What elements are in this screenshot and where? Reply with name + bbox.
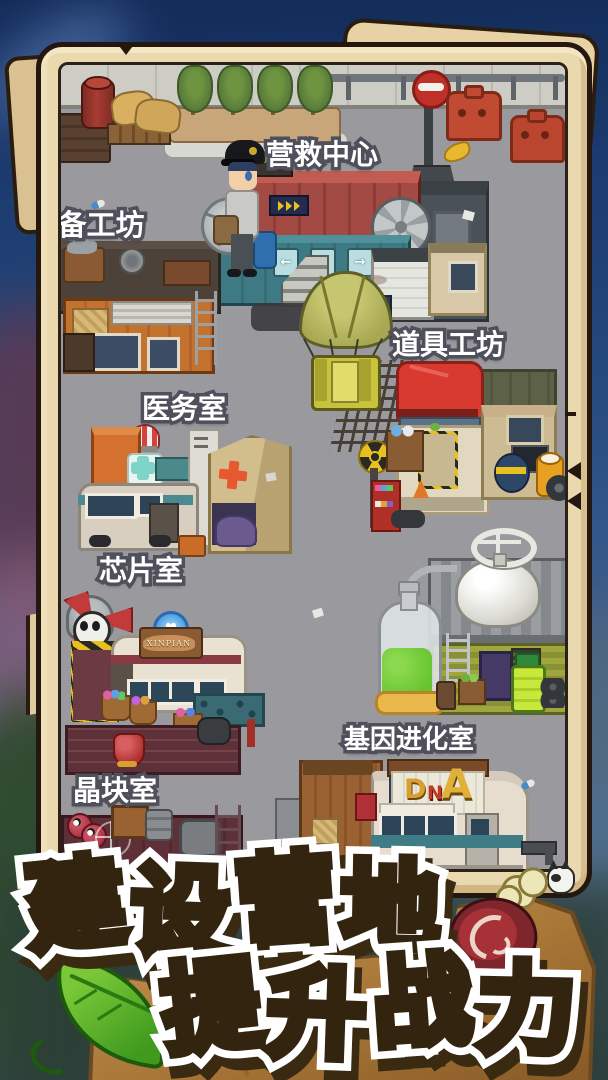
building-propane-lab[interactable]	[371, 525, 568, 715]
plant-foliage	[297, 65, 333, 113]
panel-handle	[194, 437, 208, 440]
panda-eye	[80, 621, 88, 631]
character-shoe	[227, 269, 241, 277]
shed-window	[448, 261, 478, 293]
plant-foliage	[177, 65, 213, 113]
shelf-items	[375, 485, 393, 491]
van-sign-banner: XINPIAN	[143, 635, 195, 651]
van-window-mullion	[169, 679, 172, 699]
dna-letter-a: A	[441, 762, 472, 808]
building-equipment-workshop[interactable]	[58, 238, 217, 370]
building-chip-room[interactable]: ♥ XINPIAN	[61, 591, 265, 773]
cap-badge	[249, 147, 257, 155]
label-rescue-center: 营救中心营救中心	[257, 141, 387, 169]
hazard-arrow-sign	[269, 195, 309, 216]
bottle-base-ring	[375, 691, 445, 715]
frame-notch	[567, 462, 581, 480]
debris	[312, 608, 324, 619]
traffic-cone	[413, 480, 429, 498]
trailer-sign	[355, 793, 377, 821]
tools	[67, 240, 97, 254]
label-gene-evolution: 基因进化室基因进化室	[341, 727, 477, 753]
frame-dash	[565, 412, 576, 416]
tire	[546, 475, 568, 501]
medical-cross-icon	[131, 462, 155, 474]
workshop-window	[92, 333, 141, 371]
creature-eye	[73, 818, 81, 826]
building-base	[398, 497, 484, 511]
character-hair	[228, 162, 257, 171]
workshop-window	[147, 337, 180, 371]
van-sign-text: XINPIAN	[147, 639, 191, 648]
shelf-items	[375, 501, 393, 507]
barrier-hole	[478, 109, 486, 117]
crate-panel	[331, 361, 359, 403]
door-sprout	[430, 423, 440, 431]
rail-post	[511, 76, 516, 100]
sprouts	[461, 674, 479, 682]
creature-eye	[87, 828, 95, 836]
label-equipment-workshop: 备工坊备工坊	[58, 211, 151, 240]
panda-eye	[92, 621, 100, 631]
pot-base	[117, 761, 137, 767]
bench-window	[506, 415, 544, 445]
sprout-crate	[458, 679, 486, 705]
crate-side	[315, 359, 327, 401]
camp-map: ← ↑ → ↓	[58, 62, 568, 872]
tires	[539, 678, 567, 708]
barrier-hole	[541, 131, 549, 139]
gems	[175, 708, 197, 717]
tarp-edge	[396, 409, 478, 417]
label-chip-room: 芯片室芯片室	[91, 557, 191, 585]
chevron-icon	[294, 201, 300, 211]
trailer-teal-stripe	[371, 835, 523, 848]
wooden-box-top	[303, 760, 373, 775]
gems	[103, 690, 125, 700]
debris	[265, 472, 276, 482]
barrier-cap	[527, 109, 547, 123]
game-screenshot: ← ↑ → ↓	[0, 0, 608, 1080]
tire-stack	[197, 717, 231, 745]
banner-line2-fill: 提升战力	[162, 951, 584, 1056]
roof-vent	[119, 248, 145, 274]
blue-jars	[390, 425, 416, 437]
gray-barrel	[145, 809, 173, 841]
parachute-canopy	[299, 271, 393, 349]
label-medical-room: 医务室医务室	[125, 395, 243, 423]
purple-cloth	[215, 515, 257, 547]
label-crystal-room: 晶块室晶块室	[61, 777, 169, 805]
propane-tank	[455, 558, 541, 628]
plant-foliage	[217, 65, 253, 113]
ac-strip	[111, 301, 193, 325]
label-prop-workshop: 道具工坊道具工坊	[383, 331, 513, 359]
glow-canister	[511, 653, 540, 709]
rail-post	[553, 76, 558, 100]
frame-notch	[116, 42, 136, 55]
gems	[131, 696, 151, 705]
chevron-icon	[286, 201, 292, 211]
character-eye	[245, 171, 252, 181]
panel-handle	[194, 445, 208, 448]
barrier-cap	[464, 85, 484, 99]
parachute-crate[interactable]	[293, 271, 393, 407]
red-barrel-lid	[84, 76, 112, 90]
ladder	[195, 291, 217, 365]
chevron-icon	[278, 201, 284, 211]
boot	[436, 681, 456, 710]
camper-wheel	[149, 535, 171, 547]
plant-foliage	[257, 65, 293, 113]
camper-wheel	[89, 535, 111, 547]
mine-band	[496, 467, 526, 474]
character-legs	[231, 234, 253, 272]
building-medical-room[interactable]	[75, 421, 290, 553]
rail-post	[401, 76, 406, 100]
banner-line1-fill: 建设营地	[26, 849, 448, 954]
table-leg-red	[247, 719, 255, 747]
barrier-hole	[521, 131, 529, 139]
workshop-door	[63, 333, 95, 372]
yellow-barrel-top	[539, 452, 561, 465]
no-entry-bar	[418, 83, 444, 91]
wood-crate	[111, 805, 149, 839]
frame-notch	[567, 492, 581, 510]
valve-stem	[493, 553, 507, 567]
valve-spoke	[496, 529, 500, 555]
trailer-door-window	[471, 819, 489, 835]
dna-letter-d: D	[404, 774, 426, 805]
crate-side	[359, 359, 371, 401]
barrier-hole	[458, 109, 466, 117]
character-shoe	[243, 269, 257, 277]
rail-post	[346, 76, 351, 100]
bottle-neck	[400, 591, 418, 611]
camper-window	[85, 493, 137, 519]
